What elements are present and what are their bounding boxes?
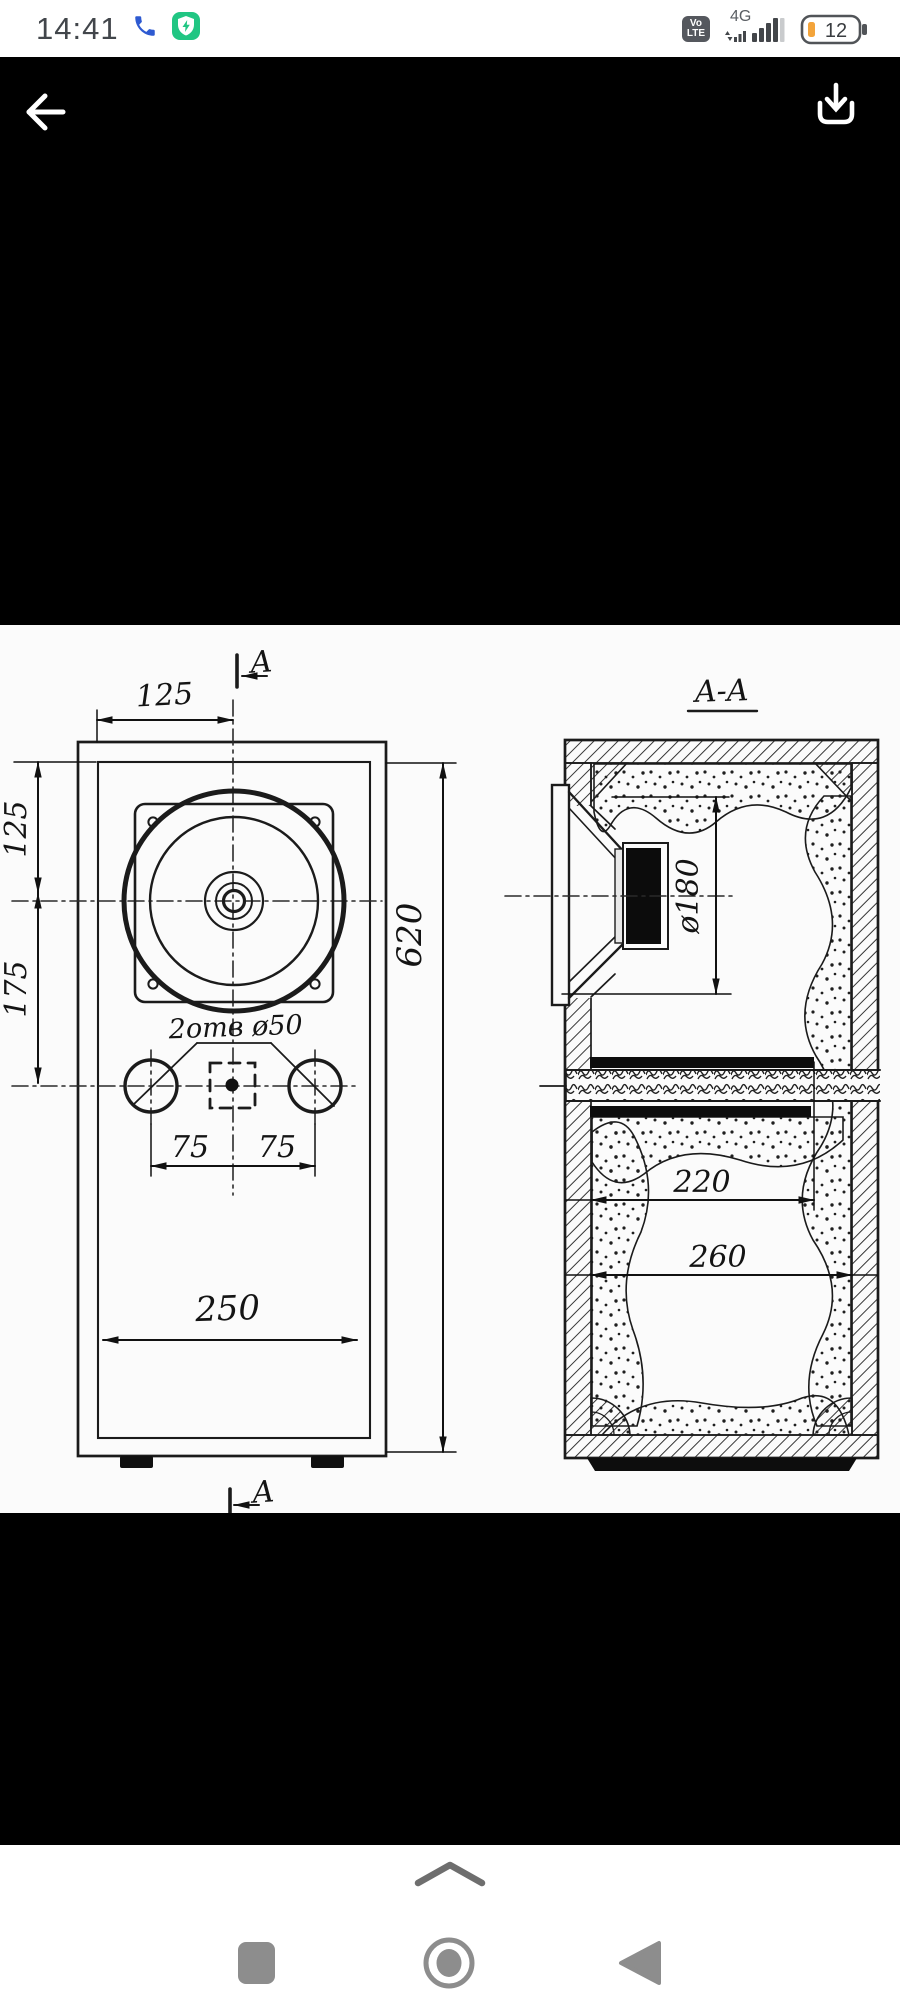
status-left-cluster: 14:41	[36, 11, 201, 47]
signal-bars-icon: 4G	[723, 7, 787, 50]
home-button[interactable]	[426, 1940, 472, 1986]
clock: 14:41	[36, 11, 119, 47]
section-view	[505, 711, 880, 1471]
image-viewer-toolbar	[0, 57, 900, 625]
dim-port-right: 75	[258, 1130, 296, 1165]
battery-icon: 12	[800, 12, 870, 46]
image-viewer-letterbox	[0, 1513, 900, 1845]
volte-line1: Vo	[690, 19, 702, 29]
status-bar: 14:41 Vo LTE 4G	[0, 0, 900, 57]
photo-view[interactable]: 125 125 175 620 250 75 75 2отв ø50 A A	[0, 625, 900, 1513]
front-view	[12, 655, 456, 1513]
ports-note: 2отв ø50	[167, 1010, 303, 1046]
dim-port-left: 75	[171, 1130, 209, 1165]
status-right-cluster: Vo LTE 4G	[682, 7, 870, 50]
volte-line2: LTE	[687, 29, 705, 39]
phone-call-icon	[132, 13, 158, 44]
back-nav-button[interactable]	[621, 1943, 659, 1983]
section-title: A-A	[691, 673, 749, 710]
volte-badge: Vo LTE	[682, 16, 710, 42]
blueprint-image: 125 125 175 620 250 75 75 2отв ø50 A A	[0, 625, 900, 1513]
dim-half-width: 125	[135, 677, 194, 715]
network-type: 4G	[730, 8, 751, 25]
system-nav-bar	[0, 1845, 900, 2000]
arrow-left-icon	[29, 96, 63, 128]
recents-button[interactable]	[238, 1942, 275, 1984]
dim-inner-width: 260	[688, 1240, 746, 1275]
download-icon	[820, 85, 852, 122]
back-button[interactable]	[22, 90, 68, 134]
dim-top-to-center: 125	[0, 800, 34, 857]
dim-speaker-diameter: ø180	[671, 858, 706, 934]
battery-percent: 12	[825, 20, 847, 42]
security-shield-icon	[171, 11, 201, 46]
dim-height: 620	[390, 903, 430, 968]
dim-shelf-opening: 220	[672, 1165, 730, 1200]
dim-width: 250	[193, 1288, 260, 1330]
dim-center-to-ports: 175	[0, 960, 34, 1017]
screen: 14:41 Vo LTE 4G	[0, 0, 900, 2000]
download-button[interactable]	[816, 81, 856, 127]
gesture-hint-chevron-icon[interactable]	[418, 1865, 482, 1883]
